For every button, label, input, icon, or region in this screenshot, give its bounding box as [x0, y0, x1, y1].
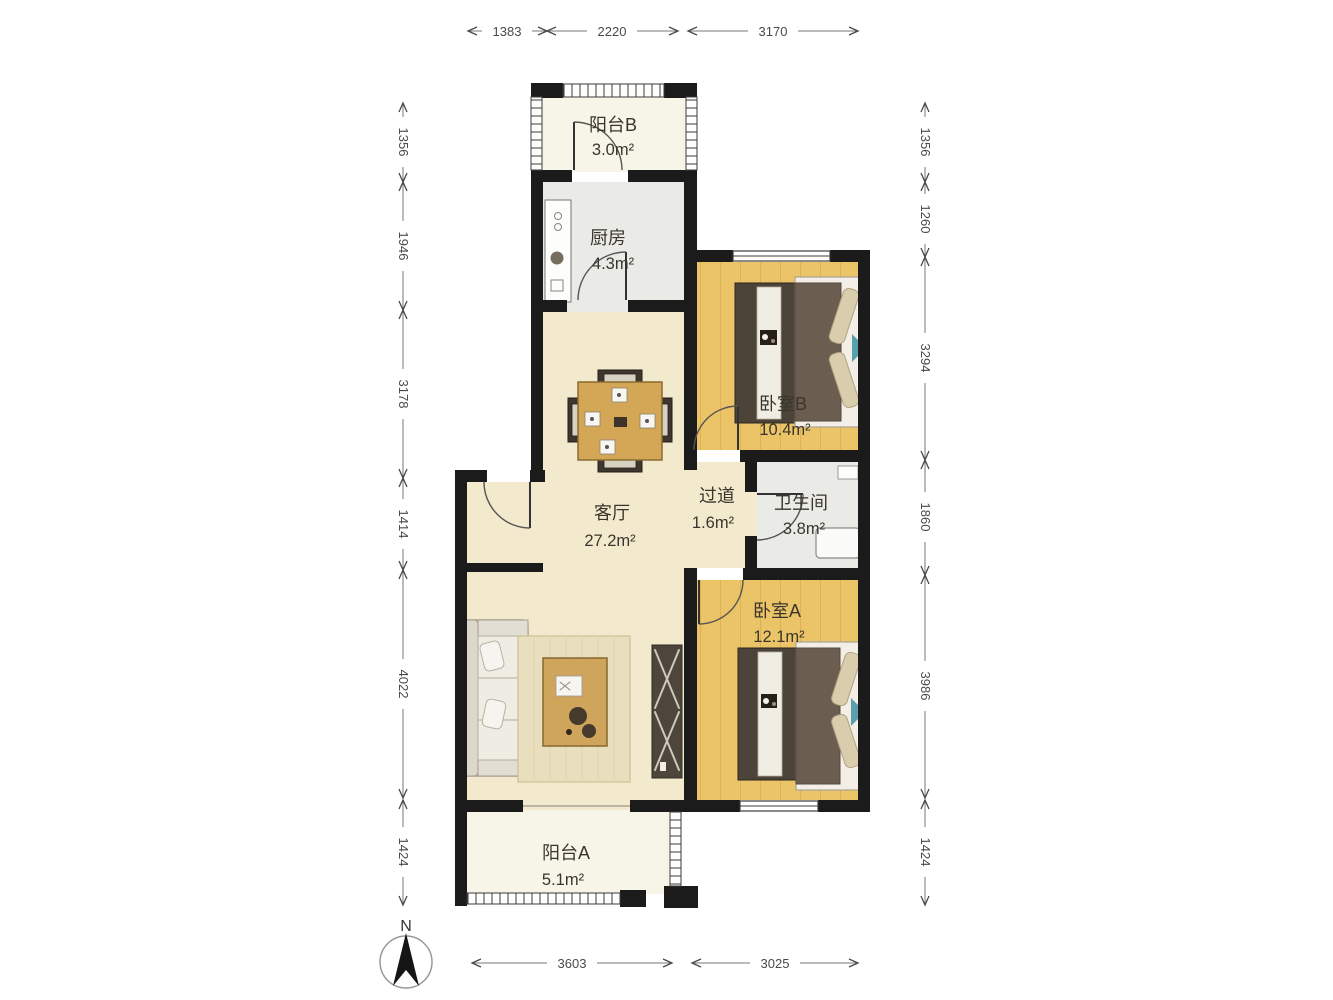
dim-bottom-0: 3603 [558, 956, 587, 971]
window-bedroom-b [733, 251, 830, 261]
floor-plan-canvas: 阳台B 3.0m² 厨房 4.3m² 卧室B 10.4m² 客厅 27.2m² … [0, 0, 1333, 1000]
room-name-bedroom-b: 卧室B [759, 394, 807, 414]
window-bedroom-a [740, 801, 818, 811]
window-balcony-b-right [686, 97, 697, 170]
room-area-bedroom-a: 12.1m² [753, 628, 805, 646]
room-name-balcony-a: 阳台A [542, 843, 590, 863]
coffee-table [543, 658, 607, 746]
room-area-balcony-b: 3.0m² [592, 141, 635, 159]
dim-left-5: 1424 [396, 838, 411, 867]
dim-right-3: 1860 [918, 503, 933, 532]
room-name-balcony-b: 阳台B [589, 115, 637, 135]
tv-cabinet [652, 645, 682, 778]
window-balcony-a-right [670, 812, 681, 886]
room-area-corridor: 1.6m² [692, 514, 735, 532]
room-area-balcony-a: 5.1m² [542, 871, 585, 889]
room-name-bathroom: 卫生间 [774, 493, 828, 513]
dim-top-1: 2220 [598, 24, 627, 39]
dim-left-4: 4022 [396, 670, 411, 699]
room-area-kitchen: 4.3m² [592, 255, 635, 273]
room-area-bathroom: 3.8m² [783, 520, 826, 538]
dim-left-1: 1946 [396, 232, 411, 261]
window-balcony-b-top [563, 84, 664, 97]
room-area-bedroom-b: 10.4m² [759, 421, 811, 439]
compass-label: N [400, 918, 412, 935]
north-compass: N [380, 918, 432, 988]
dim-bottom-1: 3025 [761, 956, 790, 971]
dim-left-3: 1414 [396, 510, 411, 539]
dim-right-5: 1424 [918, 838, 933, 867]
dim-top-2: 3170 [759, 24, 788, 39]
window-balcony-b-left [531, 97, 542, 170]
room-name-living-room: 客厅 [594, 503, 630, 523]
room-name-kitchen: 厨房 [590, 228, 626, 248]
room-area-living-room: 27.2m² [584, 532, 636, 550]
dim-right-0: 1356 [918, 128, 933, 157]
floor-plan-page: 阳台B 3.0m² 厨房 4.3m² 卧室B 10.4m² 客厅 27.2m² … [0, 0, 1333, 1000]
dining-set [568, 370, 672, 472]
wardrobe-bedroom-a [738, 648, 798, 780]
window-balcony-a-bottom [467, 893, 620, 904]
room-name-bedroom-a: 卧室A [753, 601, 801, 621]
dim-left-0: 1356 [396, 128, 411, 157]
dim-right-4: 3986 [918, 672, 933, 701]
kitchen-counter [545, 200, 571, 302]
room-name-corridor: 过道 [699, 486, 735, 506]
dim-left-2: 3178 [396, 380, 411, 409]
bed-bedroom-a [796, 642, 865, 790]
dim-right-1: 1260 [918, 205, 933, 234]
dim-top-0: 1383 [493, 24, 522, 39]
dim-right-2: 3294 [918, 344, 933, 373]
